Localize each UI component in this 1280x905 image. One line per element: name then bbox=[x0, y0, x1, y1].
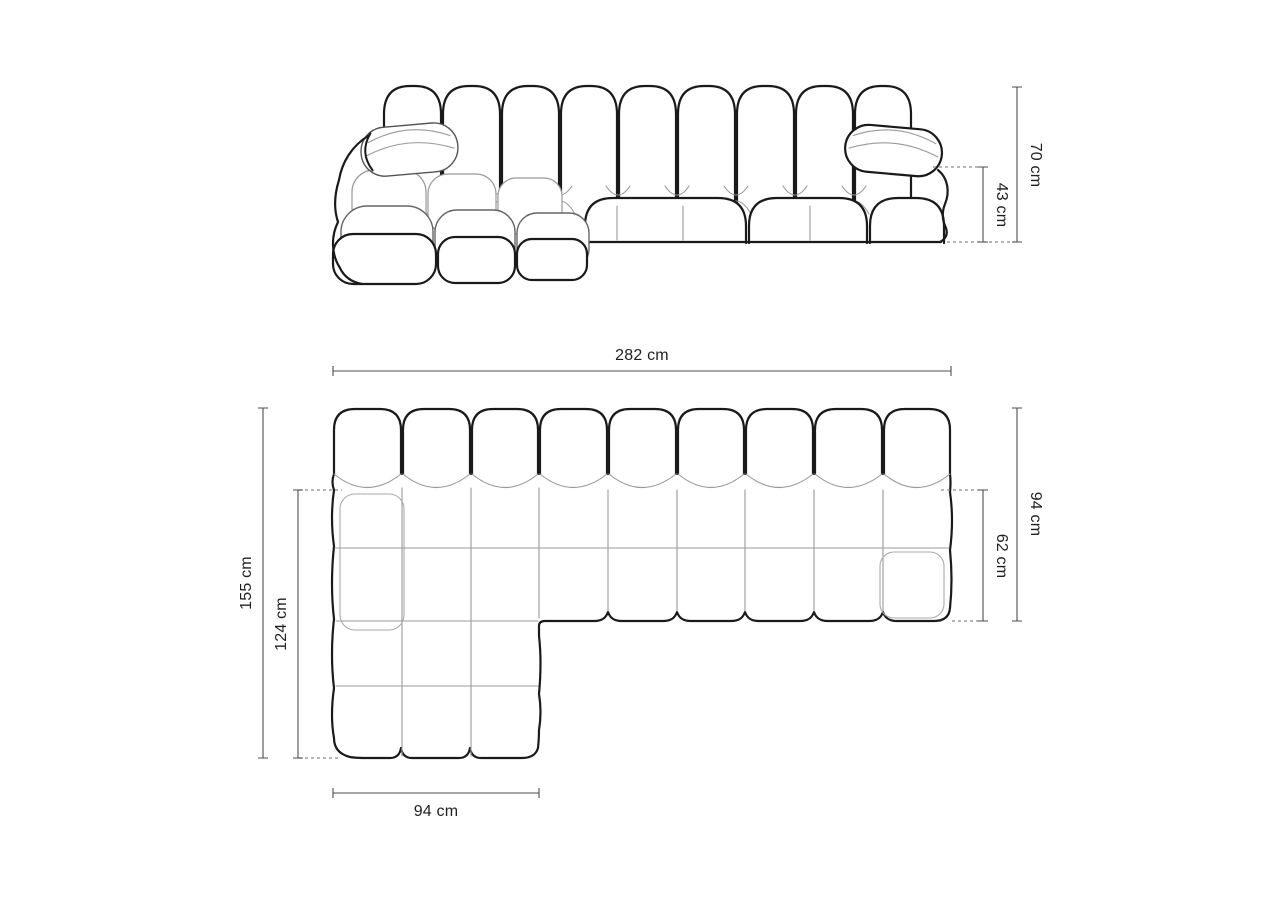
top-backrest-sags bbox=[334, 474, 950, 488]
front-view-drawing bbox=[333, 86, 948, 284]
dimension-label-seat-height: 43 cm bbox=[992, 183, 1010, 228]
front-right-armrest bbox=[843, 123, 944, 178]
front-chaise-front-row bbox=[333, 234, 587, 284]
top-backrest-bubbles bbox=[334, 409, 950, 474]
dimension-label-chaise-width: 94 cm bbox=[414, 803, 459, 821]
dimension-label-right-depth: 94 cm bbox=[1026, 492, 1044, 537]
dimension-label-right-seat-depth: 62 cm bbox=[992, 534, 1010, 579]
dimension-label-total-depth-left: 155 cm bbox=[238, 556, 256, 610]
top-view-drawing bbox=[332, 409, 952, 758]
dimension-label-total-height: 70 cm bbox=[1026, 143, 1044, 188]
top-right-armrest-inset bbox=[880, 552, 944, 618]
dimension-label-chaise-inner-depth: 124 cm bbox=[273, 597, 291, 651]
sofa-dimension-diagram-canvas: 282 cm 94 cm 155 cm 124 cm 94 cm 62 cm 7… bbox=[0, 0, 1280, 905]
front-seat-cushions bbox=[585, 198, 944, 243]
top-perimeter bbox=[332, 474, 952, 758]
top-left-armrest-inset bbox=[340, 494, 404, 630]
front-left-armrest bbox=[359, 121, 460, 178]
dimension-label-total-width: 282 cm bbox=[615, 347, 669, 365]
sofa-dimension-diagram bbox=[0, 0, 1280, 905]
